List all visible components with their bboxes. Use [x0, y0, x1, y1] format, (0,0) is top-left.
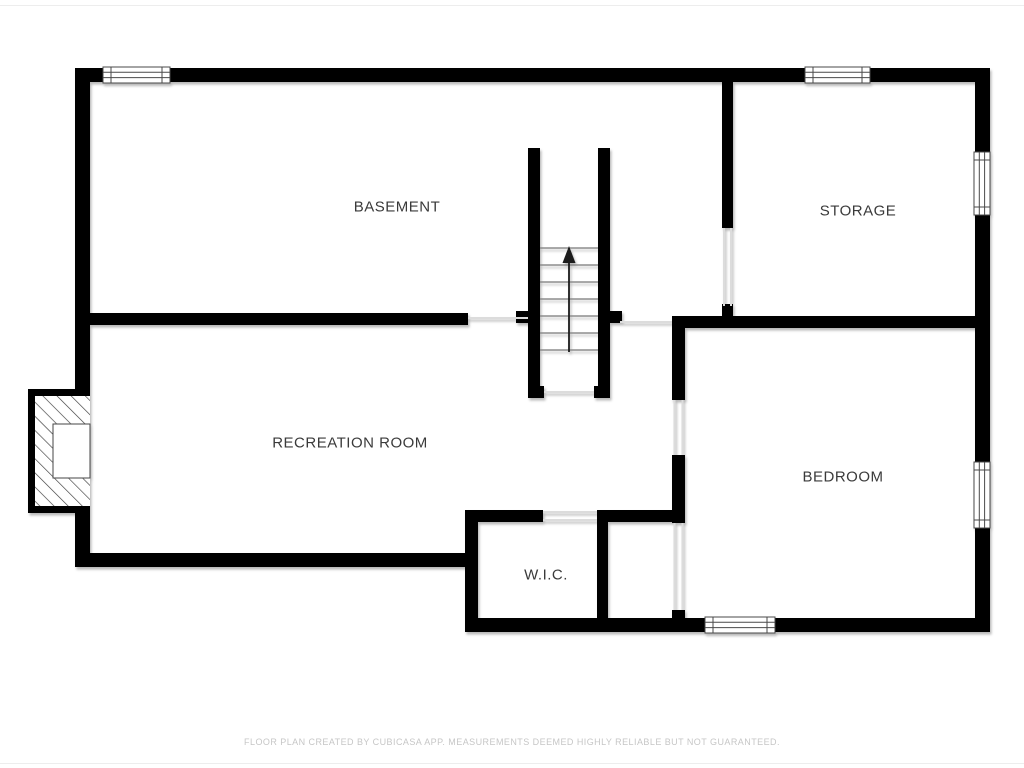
stairs — [540, 246, 598, 352]
wall-basement-storage-stub — [722, 304, 733, 318]
footer-disclaimer: FLOOR PLAN CREATED BY CUBICASA APP. MEAS… — [244, 737, 780, 747]
floorplan-drawing — [0, 0, 1024, 768]
room-label-basement: BASEMENT — [354, 199, 441, 216]
fireplace — [28, 389, 90, 513]
wall-stairwell-left — [528, 148, 540, 398]
floorplan-page: BASEMENT STORAGE RECREATION ROOM BEDROOM… — [0, 0, 1024, 768]
room-label-bedroom: BEDROOM — [802, 469, 883, 486]
walls — [75, 68, 990, 632]
wall-basement-storage — [722, 82, 733, 228]
wall-stair-foot-left — [528, 386, 544, 398]
wall-wic-top-right — [597, 510, 685, 522]
wall-storage-bedroom — [672, 316, 990, 328]
room-label-wic: W.I.C. — [524, 567, 568, 584]
window-top-left — [103, 67, 170, 83]
window-top-right — [805, 67, 870, 83]
window-bottom — [705, 617, 775, 633]
room-label-storage: STORAGE — [820, 203, 897, 220]
firebox — [53, 424, 90, 478]
window-right-upper — [974, 152, 990, 215]
room-label-recreation-room: RECREATION ROOM — [272, 435, 428, 452]
wall-basement-recroom — [75, 313, 468, 325]
wall-bedroom-left-upper — [672, 316, 685, 400]
wall-stair-foot-right — [594, 386, 610, 398]
wall-stairwell-right — [598, 148, 610, 398]
wall-wic-top-left — [465, 510, 543, 522]
wall-wic-left — [465, 510, 478, 632]
wall-wic-right — [597, 510, 608, 632]
wall-bedroom-left-lower — [672, 610, 685, 632]
wall-recroom-bottom — [75, 553, 478, 567]
window-right-lower — [974, 462, 990, 528]
